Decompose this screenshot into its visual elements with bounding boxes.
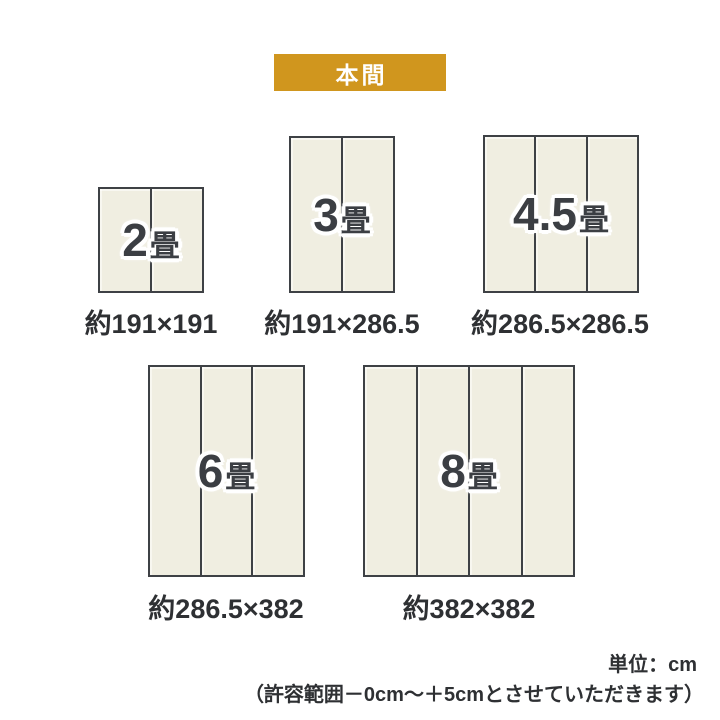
tatami-mat — [468, 367, 521, 575]
tatami-mat — [341, 138, 393, 291]
tolerance-note: （許容範囲－0cm～＋5cmとさせていただきます） — [244, 678, 704, 707]
tatami-panel-8jo: 8畳 — [363, 365, 575, 577]
tatami-mat — [200, 367, 252, 575]
tatami-size-diagram: 本間 2畳 約191×191 3畳 約191×286.5 4.5畳 約286.5… — [0, 0, 720, 720]
tatami-panel-4-5jo: 4.5畳 — [483, 135, 639, 293]
tatami-mat — [365, 367, 416, 575]
dimension-caption-2jo: 約191×191 — [85, 302, 218, 341]
tatami-mat — [251, 367, 303, 575]
tatami-mat — [100, 189, 150, 291]
tatami-mat — [586, 137, 637, 291]
tatami-mat — [521, 367, 574, 575]
tatami-mat — [150, 189, 202, 291]
room-standard-badge: 本間 — [274, 54, 446, 91]
dimension-caption-4-5jo: 約286.5×286.5 — [471, 302, 649, 341]
dimension-caption-3jo: 約191×286.5 — [264, 302, 419, 341]
tatami-mat — [534, 137, 585, 291]
dimension-caption-8jo: 約382×382 — [403, 587, 536, 626]
dimension-caption-6jo: 約286.5×382 — [148, 587, 303, 626]
tatami-mat — [485, 137, 534, 291]
unit-label: 単位：cm — [608, 648, 697, 677]
tatami-mat — [150, 367, 200, 575]
tatami-panel-2jo: 2畳 — [98, 187, 204, 293]
badge-label: 本間 — [336, 56, 388, 90]
tatami-mat — [416, 367, 469, 575]
tatami-panel-6jo: 6畳 — [148, 365, 305, 577]
tatami-panel-3jo: 3畳 — [289, 136, 395, 293]
tatami-mat — [291, 138, 341, 291]
